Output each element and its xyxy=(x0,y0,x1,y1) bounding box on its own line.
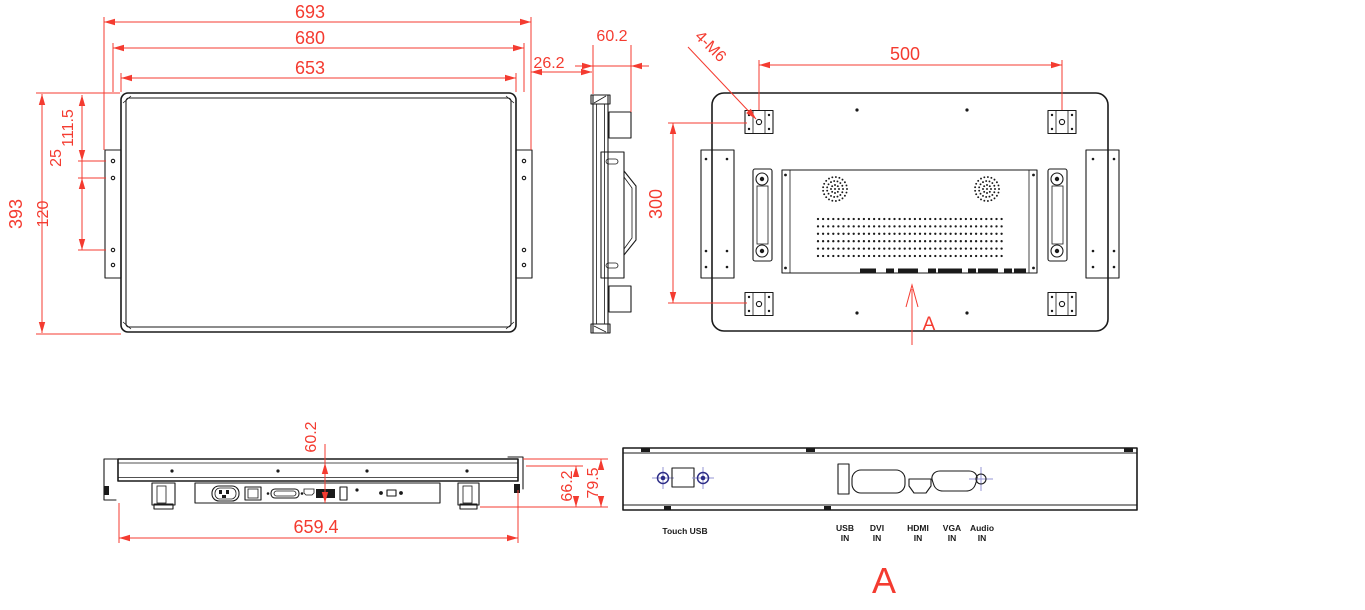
vent-dot xyxy=(863,255,865,257)
screw-dot xyxy=(705,250,708,253)
speaker-dot xyxy=(987,176,989,178)
touch-usb-port xyxy=(672,468,694,487)
side-bottom-block xyxy=(609,286,631,312)
screw-dot xyxy=(965,108,968,111)
vent-dot xyxy=(1000,255,1002,257)
strip-notch xyxy=(824,506,831,510)
front-panel-inner xyxy=(126,98,511,327)
screw-dot xyxy=(1113,158,1116,161)
vent-dot xyxy=(939,218,941,220)
bracket-hole xyxy=(111,263,114,266)
vent-dot xyxy=(893,218,895,220)
audio-jack-dot xyxy=(399,491,403,495)
vent-dot xyxy=(965,255,967,257)
side-top-block xyxy=(609,112,631,138)
hdmi-in-label: HDMI xyxy=(907,523,929,533)
handle-bar xyxy=(753,169,772,261)
bottom-right-foot xyxy=(458,483,479,509)
vent-dot xyxy=(914,240,916,242)
vent-dot xyxy=(898,218,900,220)
usb-in-label: USB xyxy=(836,523,854,533)
vent-dot xyxy=(822,240,824,242)
front-view xyxy=(105,93,532,332)
vent-dot xyxy=(939,240,941,242)
side-handle-outer xyxy=(624,171,636,255)
vent-dot xyxy=(904,247,906,249)
vent-dot xyxy=(919,233,921,235)
vent-dot xyxy=(929,247,931,249)
speaker-dot xyxy=(983,176,985,178)
speaker-dot xyxy=(835,176,837,178)
speaker-dot xyxy=(837,196,839,198)
vent-dot xyxy=(949,218,951,220)
screw-dot xyxy=(855,311,858,314)
vent-dot xyxy=(858,218,860,220)
dim-arrowhead xyxy=(79,150,85,161)
speaker-dot xyxy=(974,190,976,192)
strip-notch xyxy=(664,506,671,510)
rear-view xyxy=(701,93,1119,331)
speaker-dot xyxy=(982,188,984,190)
vent-dot xyxy=(924,218,926,220)
vent-dot xyxy=(904,218,906,220)
speaker-dot xyxy=(839,182,841,184)
vent-dot xyxy=(893,225,895,227)
vent-dot xyxy=(975,240,977,242)
vent-dot xyxy=(944,247,946,249)
vent-dot xyxy=(863,233,865,235)
vesa-plates xyxy=(745,111,1076,316)
vent-dot xyxy=(914,218,916,220)
side-view xyxy=(591,95,636,333)
speaker-dot xyxy=(822,190,824,192)
vent-dot xyxy=(944,255,946,257)
vent-dot xyxy=(934,218,936,220)
speaker-dot xyxy=(982,195,984,197)
screw-dot xyxy=(1092,250,1095,253)
dim-arrowhead xyxy=(119,535,130,541)
vent-dot xyxy=(898,255,900,257)
vent-dot xyxy=(883,233,885,235)
vent-dot xyxy=(929,255,931,257)
speaker-dot xyxy=(987,200,989,202)
rear-connector xyxy=(1014,269,1026,274)
vesa-plate-screw xyxy=(768,128,770,130)
screw-dot xyxy=(726,266,729,269)
audio-in-label: Audio xyxy=(970,523,994,533)
screw-core xyxy=(661,476,666,481)
rear-right-handle xyxy=(1048,169,1067,261)
vent-dot xyxy=(970,247,972,249)
vent-dot xyxy=(868,255,870,257)
dim-bracket-offset: 26.2 xyxy=(533,55,564,72)
vent-dot xyxy=(1000,247,1002,249)
vesa-plate-screw xyxy=(1051,114,1053,116)
screw-dot xyxy=(726,158,729,161)
strip-notch xyxy=(806,448,815,452)
vent-dot xyxy=(965,240,967,242)
ac-pin xyxy=(222,495,226,498)
vent-dot xyxy=(960,233,962,235)
vent-dot xyxy=(868,225,870,227)
vent-dot xyxy=(929,225,931,227)
speaker-dot xyxy=(990,188,992,190)
vent-dot xyxy=(909,233,911,235)
vent-dot xyxy=(842,218,844,220)
vent-dot xyxy=(853,218,855,220)
speaker-dot xyxy=(841,185,843,187)
dim-height-body: 66.2 xyxy=(559,470,576,501)
vent-dot xyxy=(934,240,936,242)
speaker-dot xyxy=(839,194,841,196)
vent-dot xyxy=(858,247,860,249)
ac-pin xyxy=(219,490,222,494)
vent-dot xyxy=(909,218,911,220)
vent-dot xyxy=(837,240,839,242)
foot-inner xyxy=(157,486,166,503)
vent-dot xyxy=(893,247,895,249)
speaker-dot xyxy=(823,193,825,195)
bracket-hole xyxy=(522,176,525,179)
vent-dot xyxy=(904,225,906,227)
vent-dot xyxy=(985,247,987,249)
vent-dot xyxy=(878,240,880,242)
speaker-dot xyxy=(828,193,830,195)
dvi-in-label-dir: IN xyxy=(873,533,882,543)
vent-dot xyxy=(944,240,946,242)
vent-dot xyxy=(827,225,829,227)
touch-usb-label: Touch USB xyxy=(662,526,707,536)
front-panel-outer xyxy=(121,93,516,332)
vent-dot xyxy=(817,255,819,257)
screw-dot xyxy=(365,469,368,472)
bracket-hole xyxy=(522,263,525,266)
vent-dot xyxy=(863,225,865,227)
dim-hole-top-offset: 111.5 xyxy=(60,109,77,147)
vent-dot xyxy=(868,233,870,235)
vent-dot xyxy=(970,255,972,257)
rear-panel xyxy=(712,93,1108,331)
vent-dot xyxy=(888,240,890,242)
speaker-dot xyxy=(834,184,836,186)
vent-dot xyxy=(878,218,880,220)
vent-dot xyxy=(827,218,829,220)
screw-dot xyxy=(726,250,729,253)
vga-port-bottom xyxy=(271,489,299,498)
rear-connector xyxy=(860,269,876,274)
vent-dot xyxy=(832,218,834,220)
vent-dot xyxy=(847,225,849,227)
vesa-plate-screw xyxy=(1071,296,1073,298)
vga-in-label: VGA xyxy=(943,523,961,533)
speaker-dot xyxy=(825,180,827,182)
speaker-dot xyxy=(837,191,839,193)
vga-in-label-dir: IN xyxy=(948,533,957,543)
hdmi-port-bottom xyxy=(304,489,314,495)
vent-dot xyxy=(842,233,844,235)
speaker-dot xyxy=(980,183,982,185)
vent-dot xyxy=(924,247,926,249)
vent-dot xyxy=(934,255,936,257)
bottom-left-ear-tab xyxy=(104,486,109,495)
speaker-dot xyxy=(990,177,992,179)
vga-screw xyxy=(301,492,304,495)
speaker-dot xyxy=(998,192,1000,194)
screw-dot xyxy=(784,174,787,177)
dim-arrowhead xyxy=(520,19,531,25)
vent-dot xyxy=(990,247,992,249)
handle-screw xyxy=(1055,177,1059,181)
bottom-view xyxy=(104,457,523,509)
vent-dot xyxy=(888,233,890,235)
power-switch-inner xyxy=(248,489,258,498)
dim-arrowhead xyxy=(670,123,676,134)
speaker-dot xyxy=(996,181,998,183)
strip-notch xyxy=(641,448,650,452)
dim-height-overall: 79.5 xyxy=(585,467,602,498)
vent-dot xyxy=(924,255,926,257)
dimension-texts: 693 680 653 26.2 393 111.5 25 120 60.2 4… xyxy=(6,2,936,537)
ac-pin xyxy=(226,490,229,494)
vent-dot xyxy=(975,225,977,227)
bracket-hole xyxy=(111,248,114,251)
vent-dot xyxy=(909,240,911,242)
usb-in-port xyxy=(838,464,849,494)
vent-dot xyxy=(858,240,860,242)
vent-dot xyxy=(924,240,926,242)
speaker-dot xyxy=(837,180,839,182)
vent-dot xyxy=(975,247,977,249)
speaker-dot xyxy=(828,178,830,180)
vent-dot xyxy=(904,255,906,257)
section-arrow-label: A xyxy=(923,314,936,335)
dim-arrowhead xyxy=(507,535,518,541)
bracket-hole xyxy=(522,248,525,251)
screw-dot xyxy=(1092,266,1095,269)
vent-dot xyxy=(919,247,921,249)
screw-dot xyxy=(965,311,968,314)
speaker-dot xyxy=(825,196,827,198)
handle-screw xyxy=(1055,249,1059,253)
side-bottom-cap xyxy=(591,324,610,333)
vent-dot xyxy=(817,240,819,242)
vent-dot xyxy=(919,240,921,242)
vent-dot xyxy=(970,240,972,242)
detail-strip xyxy=(623,448,1137,510)
speaker-dot xyxy=(838,177,840,179)
port-labels: USB IN DVI IN HDMI IN VGA IN Audio IN xyxy=(836,523,994,543)
vent-dot xyxy=(990,225,992,227)
vent-dot xyxy=(853,233,855,235)
screw-dot xyxy=(784,267,787,270)
handle-screw xyxy=(760,249,764,253)
strip-notch xyxy=(1124,448,1133,452)
vent-dot xyxy=(990,255,992,257)
speaker-dot xyxy=(826,190,828,192)
vent-dot xyxy=(914,255,916,257)
vent-dot xyxy=(888,255,890,257)
vent-dot xyxy=(944,225,946,227)
speaker-dot xyxy=(842,188,844,190)
vent-dot xyxy=(919,225,921,227)
vent-dot xyxy=(878,255,880,257)
speaker-dot xyxy=(828,198,830,200)
vent-dot xyxy=(970,218,972,220)
bracket-hole xyxy=(111,176,114,179)
speaker-dot xyxy=(983,191,985,193)
handle-screw xyxy=(760,177,764,181)
hdmi-in-label-dir: IN xyxy=(914,533,923,543)
bottom-left-foot xyxy=(152,483,175,509)
vent-dot xyxy=(975,255,977,257)
vent-dot xyxy=(822,255,824,257)
vent-dot xyxy=(868,247,870,249)
speaker-dot xyxy=(996,195,998,197)
vent-dot xyxy=(898,247,900,249)
vent-dot xyxy=(847,233,849,235)
vent-dot xyxy=(995,218,997,220)
bottom-right-ear-tab xyxy=(514,484,520,493)
speaker-dot xyxy=(831,200,833,202)
screw-dot xyxy=(276,469,279,472)
rear-connector xyxy=(898,269,918,274)
vent-dot xyxy=(847,218,849,220)
dim-vesa-width: 500 xyxy=(890,44,920,64)
vent-dot xyxy=(919,218,921,220)
dim-arrowhead xyxy=(322,463,328,474)
vent-dot xyxy=(898,240,900,242)
dim-side-depth: 60.2 xyxy=(596,28,627,45)
dim-arrowhead xyxy=(505,75,516,81)
rear-left-handle xyxy=(753,169,772,261)
screw-dot xyxy=(465,469,468,472)
dim-arrowhead xyxy=(113,45,124,51)
vent-dot xyxy=(883,240,885,242)
vent-dot xyxy=(995,233,997,235)
vent-dot xyxy=(883,255,885,257)
vent-dot xyxy=(985,225,987,227)
vent-dot xyxy=(955,225,957,227)
vent-dot xyxy=(863,240,865,242)
dim-width-panel: 653 xyxy=(295,58,325,78)
vent-dot xyxy=(822,218,824,220)
vent-dot xyxy=(873,218,875,220)
vent-grid xyxy=(817,218,1003,257)
vent-dot xyxy=(893,233,895,235)
vent-dot xyxy=(960,218,962,220)
vent-dot xyxy=(873,233,875,235)
vent-dot xyxy=(929,218,931,220)
side-handle-inner xyxy=(624,177,632,249)
speaker-dot xyxy=(978,190,980,192)
vent-dot xyxy=(817,247,819,249)
speaker-dot xyxy=(986,192,988,194)
speaker-dot xyxy=(841,191,843,193)
speaker-dot xyxy=(991,194,993,196)
speaker-dot xyxy=(831,176,833,178)
vent-dot xyxy=(919,255,921,257)
video-input-group xyxy=(838,464,993,494)
speaker-dot xyxy=(830,195,832,197)
speaker-dot xyxy=(975,183,977,185)
vent-dot xyxy=(995,255,997,257)
vent-dot xyxy=(955,233,957,235)
foot-inner xyxy=(463,486,472,503)
vent-dot xyxy=(985,255,987,257)
bracket-hole xyxy=(522,159,525,162)
speaker-dot xyxy=(977,180,979,182)
vent-dot xyxy=(949,247,951,249)
handle-bar xyxy=(1048,169,1067,261)
speaker-dot xyxy=(993,185,995,187)
vent-dot xyxy=(949,255,951,257)
vent-dot xyxy=(914,225,916,227)
vent-dot xyxy=(980,225,982,227)
speaker-dot xyxy=(833,196,835,198)
vent-dot xyxy=(863,218,865,220)
vent-dot xyxy=(842,247,844,249)
vent-dot xyxy=(853,255,855,257)
speaker-dot xyxy=(834,188,836,190)
vent-dot xyxy=(990,233,992,235)
front-left-bracket xyxy=(105,150,121,278)
vent-dot xyxy=(965,225,967,227)
vent-dot xyxy=(995,225,997,227)
vent-dot xyxy=(995,247,997,249)
speaker-dot xyxy=(822,186,824,188)
vent-dot xyxy=(1000,218,1002,220)
dim-arrowhead xyxy=(39,322,45,333)
dimension-lines xyxy=(36,17,1062,543)
vent-dot xyxy=(914,247,916,249)
screw-dot xyxy=(1032,174,1035,177)
screw-dot xyxy=(855,108,858,111)
dim-arrowhead xyxy=(1051,62,1062,68)
vent-dot xyxy=(868,218,870,220)
vent-dot xyxy=(817,233,819,235)
speaker-dot xyxy=(985,180,987,182)
vent-dot xyxy=(822,233,824,235)
usb-port-bottom xyxy=(340,487,347,500)
speaker-dot xyxy=(837,185,839,187)
vent-dot xyxy=(904,240,906,242)
audio-in-label-dir: IN xyxy=(978,533,987,543)
speaker-dot xyxy=(842,179,844,181)
vent-dot xyxy=(970,233,972,235)
vent-dot xyxy=(898,225,900,227)
vent-dot xyxy=(832,225,834,227)
vesa-plate-screw xyxy=(748,296,750,298)
bottom-strip-inner-lines xyxy=(118,463,518,478)
vent-dot xyxy=(985,233,987,235)
vesa-plate-screw xyxy=(1071,310,1073,312)
side-top-cap-bevel xyxy=(594,96,606,103)
vent-dot xyxy=(980,218,982,220)
vent-dot xyxy=(827,233,829,235)
dim-arrowhead xyxy=(39,94,45,105)
vesa-thread-hole xyxy=(756,119,761,124)
monitor-dimension-drawing: Touch USB USB IN DVI IN HDMI IN VGA IN A… xyxy=(0,0,1365,610)
speaker-dot xyxy=(989,180,991,182)
vent-dot xyxy=(858,255,860,257)
front-bracket-holes xyxy=(111,159,525,266)
audio-crosshair xyxy=(969,467,993,491)
vent-dot xyxy=(858,233,860,235)
screw-dot xyxy=(1032,267,1035,270)
drawing-canvas: Touch USB USB IN DVI IN HDMI IN VGA IN A… xyxy=(0,0,1365,610)
dim-arrowhead xyxy=(104,19,115,25)
vent-dot xyxy=(965,247,967,249)
